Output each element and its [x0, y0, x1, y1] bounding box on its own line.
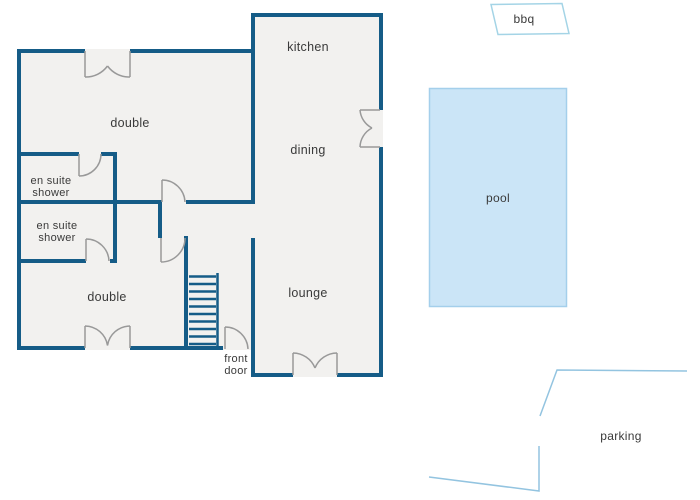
parking-label: parking	[600, 429, 641, 443]
floor-left-block	[17, 49, 255, 350]
double-bottom-label: double	[87, 290, 126, 304]
lounge-label: lounge	[288, 286, 327, 300]
pool-label: pool	[486, 191, 510, 205]
dining-label: dining	[290, 143, 325, 157]
front-door-label-line2: door	[224, 365, 247, 377]
bbq-label: bbq	[514, 12, 535, 26]
ensuite-bottom-label-line1: en suite	[37, 220, 78, 232]
floor-plan-drawing: kitchen dining lounge double double en s…	[0, 0, 700, 500]
parking-outline-bottom	[429, 446, 539, 491]
ensuite-bottom-label-line2: shower	[38, 232, 75, 244]
ensuite-top-label-line1: en suite	[31, 175, 72, 187]
floor-plan-canvas: kitchen dining lounge double double en s…	[0, 0, 700, 500]
kitchen-label: kitchen	[287, 40, 329, 54]
parking-outline	[429, 370, 687, 491]
parking-outline-top	[540, 370, 687, 416]
double-top-label: double	[110, 116, 149, 130]
front-door-label-line1: front	[224, 353, 248, 365]
floor-right-block	[251, 13, 383, 377]
ensuite-top-label-line2: shower	[32, 187, 69, 199]
